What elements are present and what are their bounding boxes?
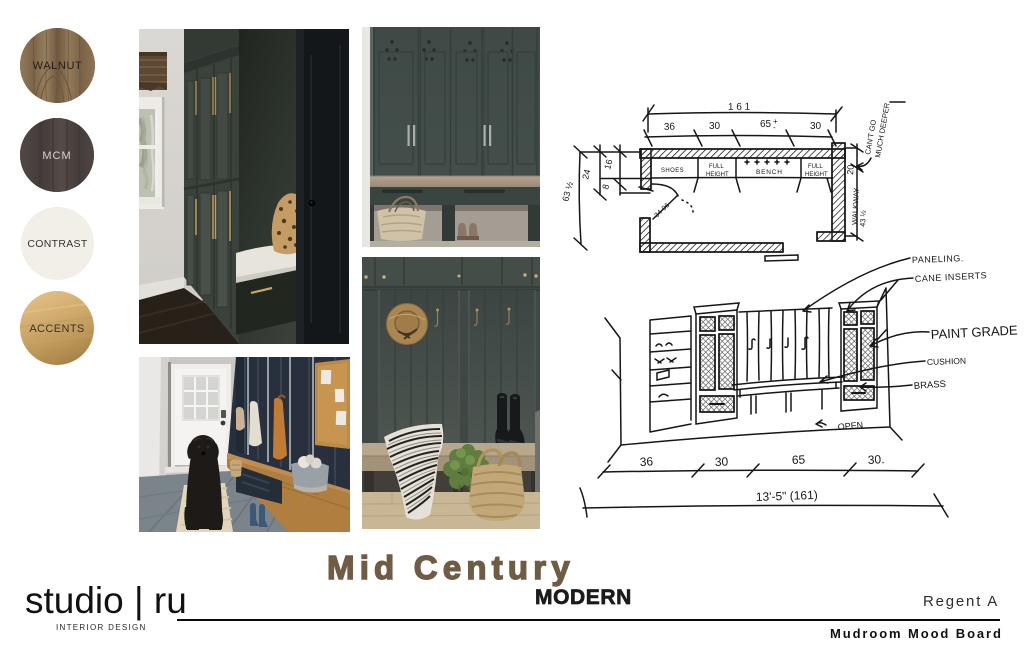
svg-text:WALNUT: WALNUT <box>33 60 83 72</box>
svg-text:SHOES: SHOES <box>661 168 684 174</box>
svg-text:HEIGHT: HEIGHT <box>706 172 729 178</box>
svg-text:16: 16 <box>602 158 614 170</box>
svg-text:20: 20 <box>845 164 856 175</box>
svg-text:63 ½: 63 ½ <box>560 180 575 202</box>
svg-text:65: 65 <box>760 119 772 130</box>
svg-text:PAINT GRADE: PAINT GRADE <box>930 322 1018 342</box>
svg-text:-: - <box>773 123 776 132</box>
svg-text:CANE INSERTS: CANE INSERTS <box>915 270 988 284</box>
svg-text:24: 24 <box>580 168 592 180</box>
svg-text:8: 8 <box>600 183 611 190</box>
svg-text:30: 30 <box>810 121 822 132</box>
svg-text:34-96: 34-96 <box>654 202 672 220</box>
svg-text:PANELING.: PANELING. <box>912 253 964 265</box>
svg-text:BENCH: BENCH <box>756 169 783 176</box>
svg-text:13'-5" (161): 13'-5" (161) <box>756 488 818 504</box>
svg-text:FULL: FULL <box>709 164 724 170</box>
svg-text:FULL: FULL <box>808 164 823 170</box>
svg-text:36: 36 <box>639 454 653 469</box>
svg-text:1 6 1: 1 6 1 <box>728 102 751 113</box>
svg-text:CONTRAST: CONTRAST <box>27 238 87 250</box>
svg-text:30: 30 <box>715 455 729 469</box>
svg-text:43 ½: 43 ½ <box>858 209 868 227</box>
svg-text:30.: 30. <box>867 452 884 467</box>
svg-text:36: 36 <box>664 122 676 133</box>
svg-text:MCM: MCM <box>42 150 71 162</box>
svg-text:HEIGHT: HEIGHT <box>805 172 828 178</box>
svg-text:65: 65 <box>792 453 806 467</box>
svg-text:30: 30 <box>709 121 721 132</box>
svg-text:CUSHION: CUSHION <box>927 356 967 367</box>
svg-text:ACCENTS: ACCENTS <box>29 323 84 335</box>
svg-text:BRASS: BRASS <box>913 379 946 392</box>
svg-text:OPEN: OPEN <box>837 420 863 432</box>
